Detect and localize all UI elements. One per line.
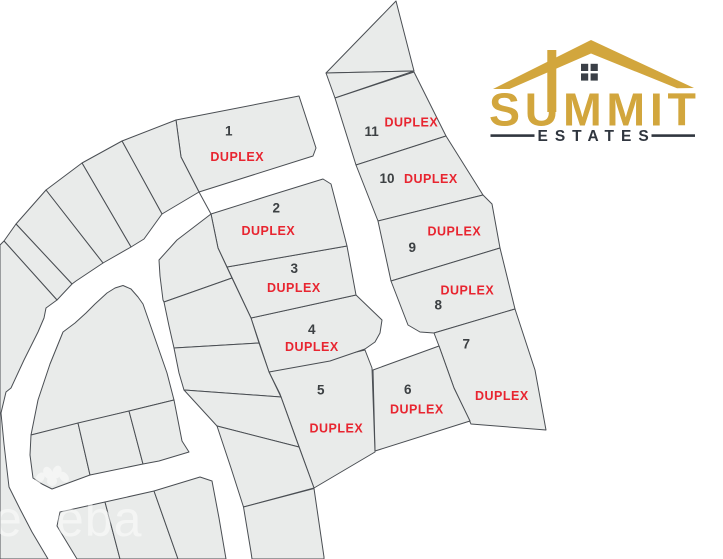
svg-text:9: 9 (409, 240, 417, 255)
svg-text:DUPLEX: DUPLEX (441, 284, 495, 298)
svg-text:10: 10 (380, 171, 395, 186)
svg-text:3: 3 (291, 261, 299, 276)
svg-text:8: 8 (435, 298, 443, 313)
svg-text:DUPLEX: DUPLEX (210, 150, 264, 164)
svg-text:ESTATES: ESTATES (538, 128, 656, 145)
svg-text:4: 4 (308, 322, 316, 337)
svg-text:7: 7 (463, 337, 471, 352)
svg-text:DUPLEX: DUPLEX (242, 224, 296, 238)
svg-text:DUPLEX: DUPLEX (285, 340, 339, 354)
svg-text:2: 2 (273, 201, 281, 216)
svg-text:5: 5 (317, 383, 325, 398)
svg-text:1: 1 (225, 124, 233, 139)
svg-text:DUPLEX: DUPLEX (404, 172, 458, 186)
svg-text:DUPLEX: DUPLEX (267, 281, 321, 295)
svg-text:DUPLEX: DUPLEX (475, 389, 529, 403)
svg-text:DUPLEX: DUPLEX (385, 116, 439, 130)
svg-text:DUPLEX: DUPLEX (310, 422, 364, 436)
svg-text:eba: eba (56, 491, 142, 547)
svg-text:11: 11 (365, 124, 380, 139)
svg-text:DUPLEX: DUPLEX (390, 403, 444, 417)
svg-text:e: e (0, 491, 23, 547)
svg-text:DUPLEX: DUPLEX (428, 225, 482, 239)
svg-text:6: 6 (404, 382, 412, 397)
